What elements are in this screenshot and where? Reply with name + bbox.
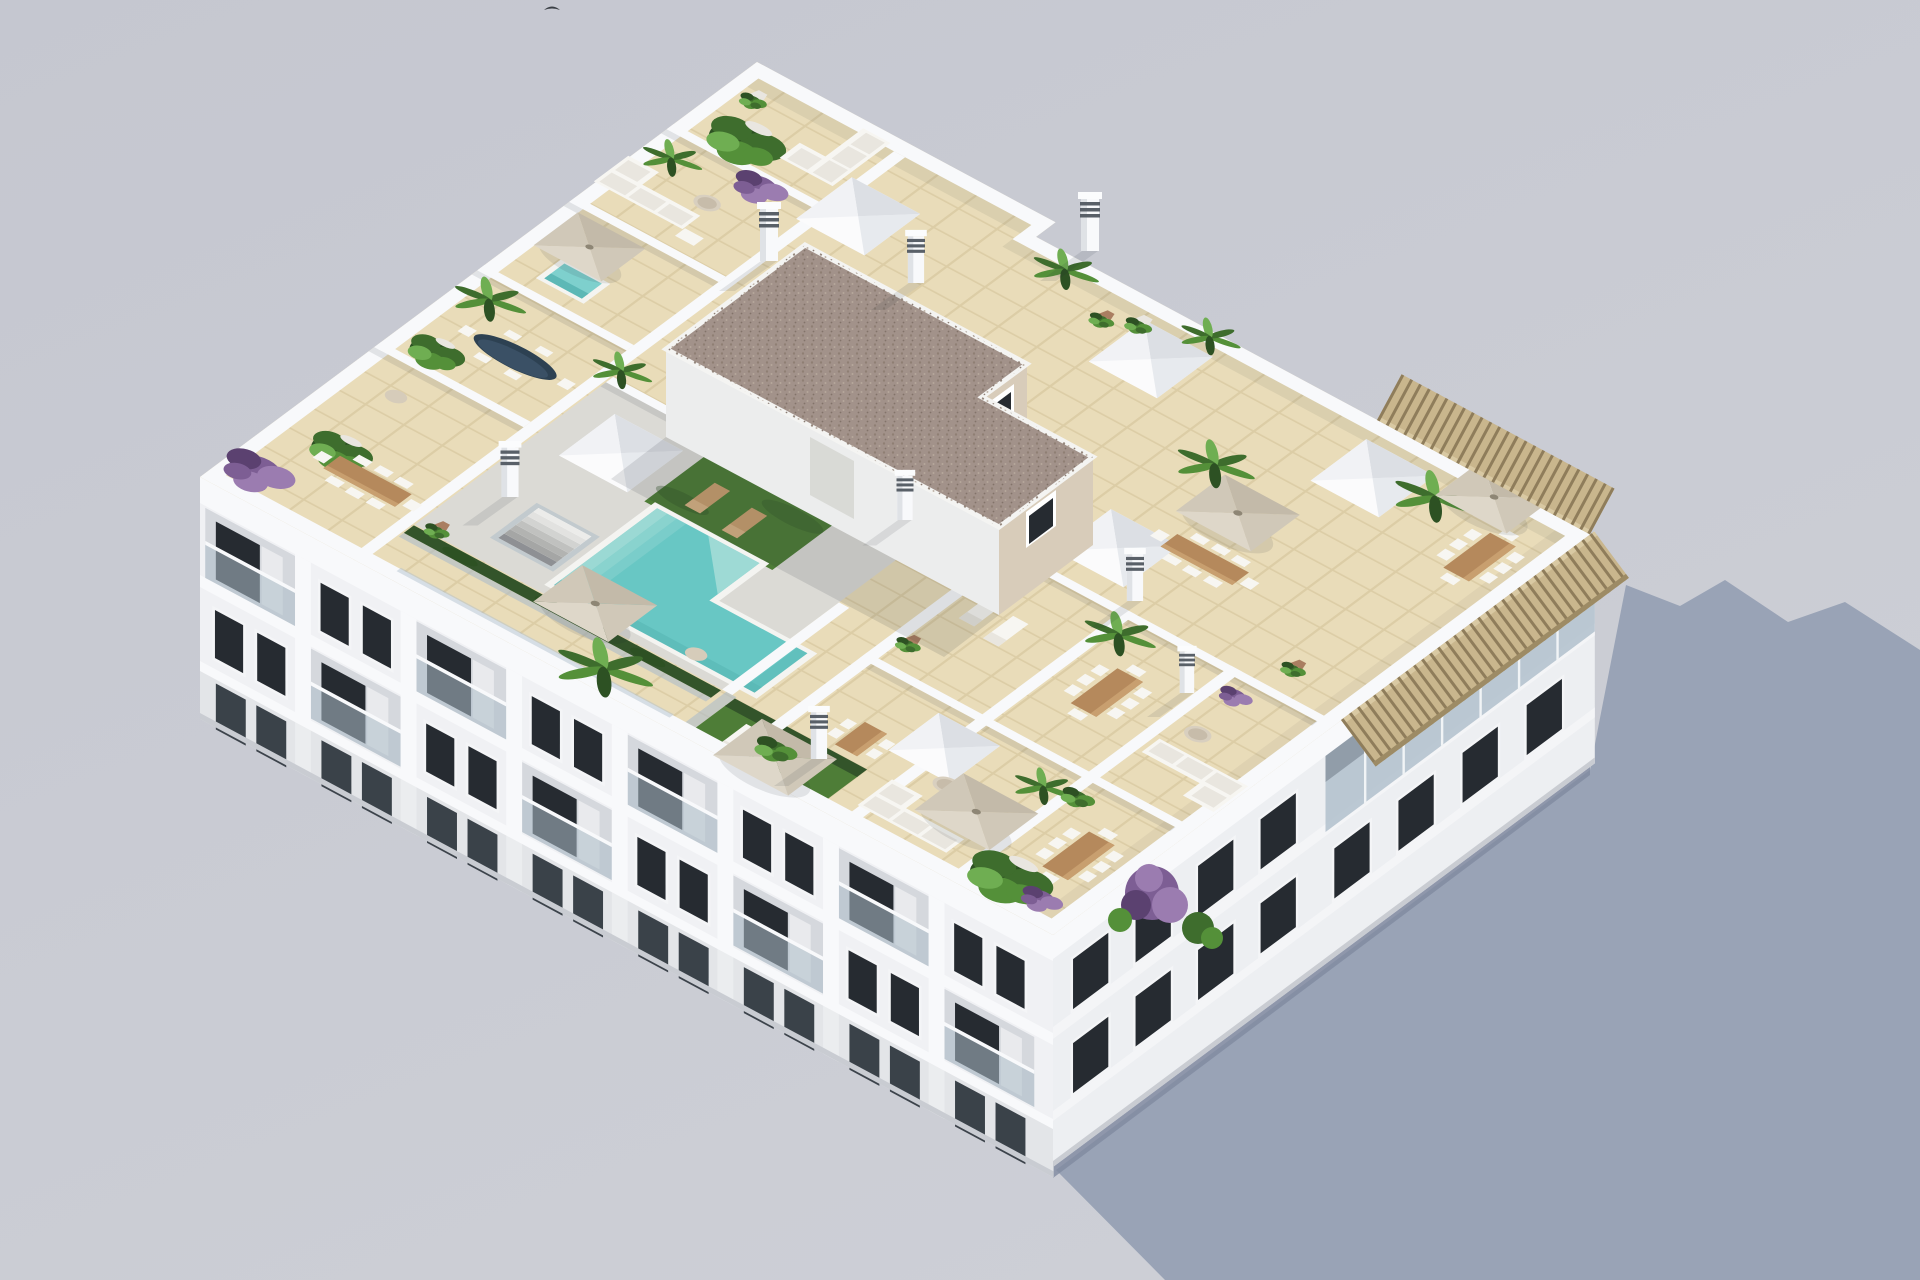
render-stage: Aerial 3D architectural rendering of a w… bbox=[0, 0, 1920, 1280]
aerial-building-render bbox=[0, 0, 1920, 1280]
